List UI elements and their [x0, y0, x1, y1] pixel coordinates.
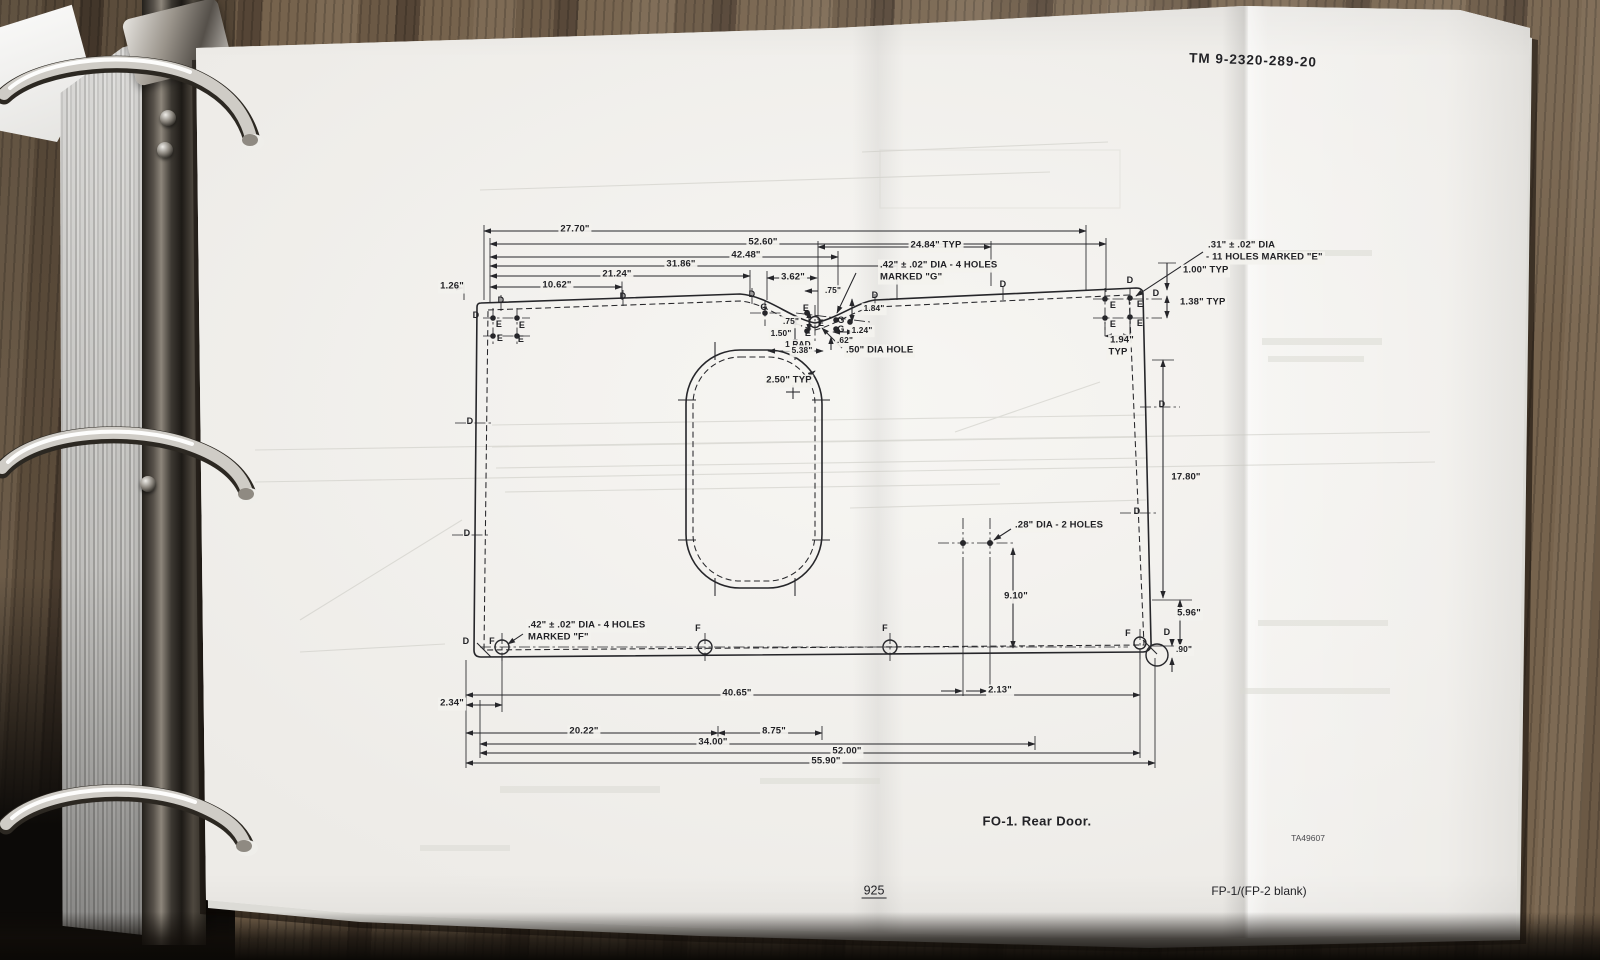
spine-screw	[140, 476, 156, 492]
hole-letter-d: D	[749, 289, 756, 299]
rear-door-drawing	[0, 0, 1600, 960]
note-holes-e: - 11 HOLES MARKED "E"	[1204, 252, 1325, 265]
hole-letter-e: E	[1137, 318, 1143, 328]
note-holes-f: .42" ± .02" DIA - 4 HOLES	[526, 620, 647, 633]
dimension-label: 52.60"	[746, 237, 779, 250]
hole-letter-e: E	[805, 328, 811, 338]
hole-letter-e: E	[1137, 299, 1143, 309]
photo-of-binder-page: 27.70"52.60"24.84" TYP42.48"31.86"21.24"…	[0, 0, 1600, 960]
hole-letter-f: F	[882, 623, 888, 633]
hole-letter-e: E	[497, 333, 503, 343]
note-holes-f: MARKED "F"	[526, 632, 591, 645]
dimension-label: 17.80"	[1169, 472, 1202, 485]
dimension-label: 34.00"	[696, 737, 729, 750]
dimension-label: 40.65"	[720, 688, 753, 701]
dimension-label: 1.84"	[862, 303, 887, 315]
dimension-label: 24.84" TYP	[909, 240, 964, 253]
hole-letter-d: D	[872, 290, 879, 300]
dimension-label: 2.13"	[986, 685, 1014, 698]
figure-caption: FO-1. Rear Door.	[983, 814, 1092, 829]
hole-letter-g: G	[760, 302, 767, 312]
dimension-label: 55.90"	[809, 756, 842, 769]
dimension-label: .75"	[823, 285, 843, 297]
dimension-label: 21.24"	[600, 269, 633, 282]
foldout-page-number: FP-1/(FP-2 blank)	[1211, 884, 1306, 898]
dimension-label: 42.48"	[729, 250, 762, 263]
dimension-label: 20.22"	[567, 726, 600, 739]
hole-letter-d: D	[1127, 275, 1134, 285]
centerlines	[452, 288, 1180, 661]
hole-letter-d: D	[620, 291, 627, 301]
hole-letter-e: E	[803, 303, 809, 313]
hole-letter-e: E	[1110, 319, 1116, 329]
hole-letter-f: F	[1125, 628, 1131, 638]
dimension-label: 2.34"	[438, 698, 466, 711]
spine-screw	[160, 110, 176, 126]
note-dia-hole: .50" DIA HOLE	[844, 345, 915, 358]
dimension-label: 1.94"	[1108, 335, 1136, 348]
hole-letter-e: E	[818, 318, 824, 328]
dimension-label: .90"	[1174, 644, 1194, 656]
hole-letter-f: F	[489, 636, 495, 646]
hole-letter-d: D	[498, 295, 505, 305]
hole-letter-e: E	[1110, 300, 1116, 310]
spine-screw	[157, 142, 173, 158]
dimension-label: 1.50"	[769, 328, 794, 340]
dimension-label: 31.86"	[664, 259, 697, 272]
foldout-page: 27.70"52.60"24.84" TYP42.48"31.86"21.24"…	[0, 0, 1600, 960]
note-holes-e: .31" ± .02" DIA	[1206, 240, 1277, 253]
hole-letter-e: E	[519, 320, 525, 330]
hole-letter-d: D	[1000, 279, 1007, 289]
holes	[490, 295, 1168, 666]
hole-letter-d: D	[1159, 399, 1166, 409]
hole-letter-d: D	[464, 528, 471, 538]
note-holes-g: MARKED "G"	[878, 272, 944, 285]
dimension-label: 10.62"	[540, 280, 573, 293]
dimension-lines	[446, 231, 1203, 763]
hole-letter-d: D	[463, 636, 470, 646]
hole-letter-d: D	[1164, 627, 1171, 637]
dimension-label: 5.38"	[790, 345, 815, 357]
hole-letter-d: D	[1134, 506, 1141, 516]
dimension-label: 9.10"	[1002, 591, 1030, 604]
dimension-label: 1.00" TYP	[1181, 265, 1230, 278]
dimension-label: TYP	[1107, 347, 1130, 360]
hole-letter-d: D	[1153, 288, 1160, 298]
dimension-label: 3.62"	[779, 272, 807, 285]
hole-letter-g: G	[837, 324, 844, 334]
hole-letter-d: D	[467, 416, 474, 426]
page-number: 925	[862, 884, 887, 899]
extension-lines	[464, 225, 1192, 768]
dimension-label: 2.50" TYP	[764, 375, 813, 388]
hole-letter-f: F	[695, 623, 701, 633]
dimension-label: 1.26"	[438, 281, 466, 294]
dimension-label: .75"	[781, 316, 801, 328]
dimension-label: 5.96"	[1175, 608, 1203, 621]
binder-bottom-edge	[0, 912, 1600, 960]
dimension-label: 1.38" TYP	[1178, 297, 1227, 310]
dimension-label: 8.75"	[760, 726, 788, 739]
door-outline	[474, 288, 1157, 657]
hole-letter-d: D	[473, 310, 480, 320]
dimension-label: 27.70"	[558, 224, 591, 237]
hole-letter-e: E	[518, 334, 524, 344]
hole-letter-e: E	[496, 319, 502, 329]
note-holes-28: .28" DIA - 2 HOLES	[1013, 520, 1105, 533]
plate-number: TA49607	[1291, 833, 1325, 843]
note-holes-g: .42" ± .02" DIA - 4 HOLES	[878, 260, 999, 273]
